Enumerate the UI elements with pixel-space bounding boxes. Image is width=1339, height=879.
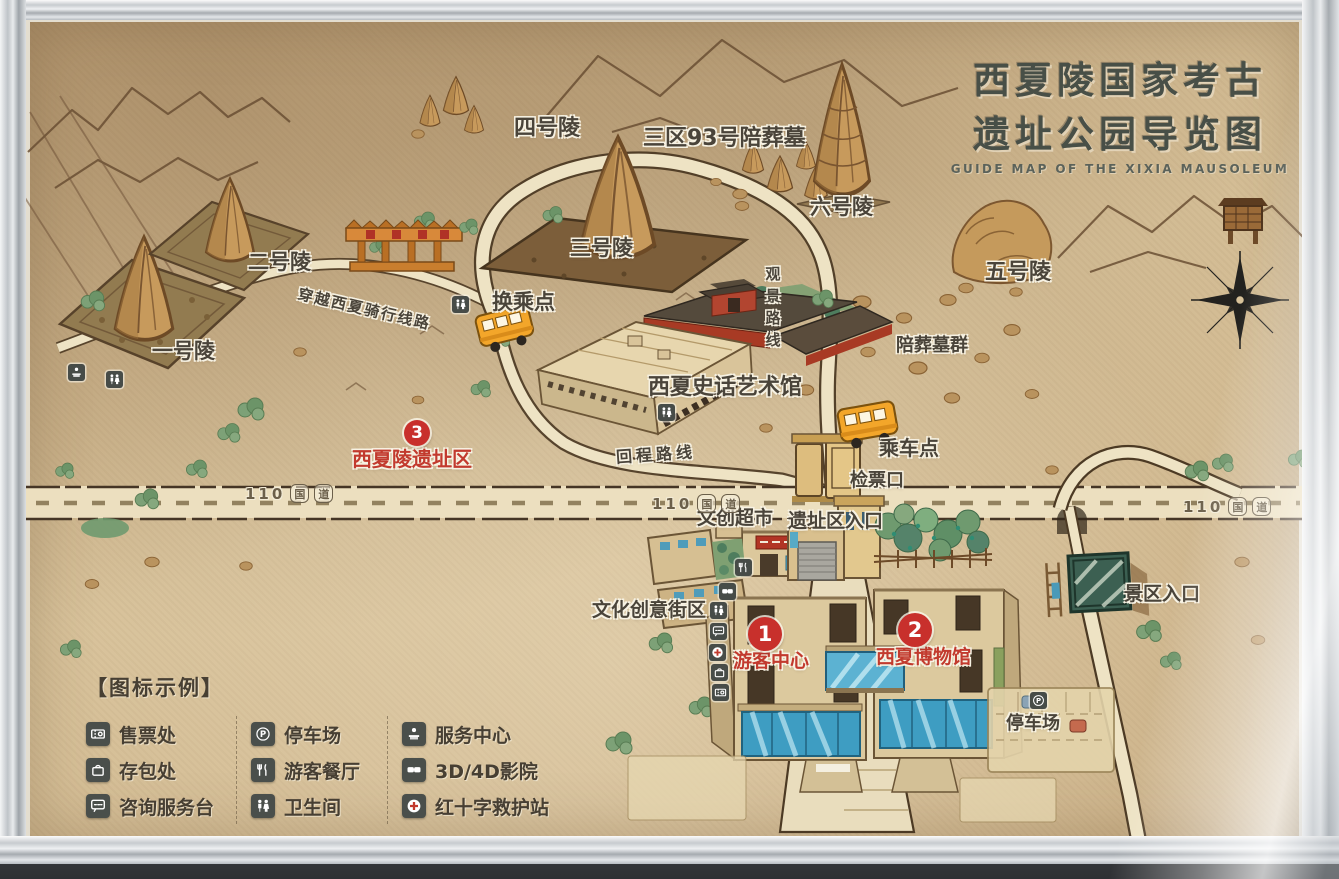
legend-grid: 售票处 存包处 咨询服务台 P 停车场 [86,716,607,824]
sign-frame-top [0,0,1339,20]
highway-110-label: 110 国 道 [245,484,333,503]
label-scenic-route: 观景路线 [764,266,781,354]
label-site-entrance: 遗址区入口 [788,511,883,532]
marker-3-site-area: 3 [404,420,430,446]
label-tomb3: 三号陵 [570,237,633,260]
legend-header: 【图标示例】 [86,672,607,702]
legend-label: 游客餐厅 [284,757,360,784]
service-center-icon [68,364,85,381]
legend-label: 红十字救护站 [435,793,549,820]
legend-label: 停车场 [284,721,341,748]
label-parking-lot: 停车场 [1006,714,1060,734]
legend-column-1: 售票处 存包处 咨询服务台 [86,716,236,824]
label-layer: 西夏陵国家考古 遗址公园导览图 GUIDE MAP OF THE XIXIA M… [0,0,1339,879]
legend-item: 服务中心 [402,716,607,752]
label-transfer-point: 换乘点 [492,291,555,314]
legend-column-3: 服务中心 3D/4D影院 红十字救护站 [387,716,607,824]
legend-item: 卫生间 [251,788,387,824]
restaurant-icon [251,758,275,782]
map-title-line2: 遗址公园导览图 [930,104,1310,158]
highway-110-label: 110 国 道 [1183,497,1271,516]
information-desk-icon [710,623,727,640]
map-title-english: GUIDE MAP OF THE XIXIA MAUSOLEUM [930,162,1310,176]
label-scenic-area-entrance: 景区入口 [1124,584,1200,605]
legend-item: 存包处 [86,752,236,788]
bag-storage-icon [86,758,110,782]
toilet-icon [251,794,275,818]
label-return-route: 回程路线 [615,443,696,466]
toilet-icon [710,602,727,619]
label-tomb1: 一号陵 [152,340,215,363]
highway-dao: 道 [314,484,333,503]
service-center-icon [402,722,426,746]
parking-icon: P [251,722,275,746]
ticket-office-icon [712,684,729,701]
label-ticket-check: 检票口 [850,471,904,491]
parking-icon: P [1030,692,1047,709]
label-visitor-center: 游客中心 [733,651,809,672]
legend-item: 游客餐厅 [251,752,387,788]
legend: 【图标示例】 售票处 存包处 咨询服务台 [86,672,607,824]
restaurant-icon [735,559,752,576]
marker-1-visitor-center: 1 [748,617,782,651]
cinema-icon [402,758,426,782]
legend-label: 售票处 [119,721,176,748]
photographed-guide-map-sign: 西夏陵国家考古 遗址公园导览图 GUIDE MAP OF THE XIXIA M… [0,0,1339,879]
label-satellite-tombs: 陪葬墓群 [896,336,968,356]
label-tomb2: 二号陵 [248,251,311,274]
highway-110-label: 110 国 道 [652,494,740,513]
first-aid-icon [709,644,726,661]
sign-frame-bottom [0,836,1339,864]
marker-2-xixia-museum: 2 [898,613,932,647]
toilet-icon [658,404,675,421]
sign-frame-right [1302,0,1339,862]
svg-text:P: P [260,730,266,740]
svg-text:P: P [1036,697,1041,705]
label-xixia-museum: 西夏博物馆 [876,647,971,668]
first-aid-icon [402,794,426,818]
label-tomb5: 五号陵 [985,261,1051,285]
label-tomb6: 六号陵 [810,196,873,219]
legend-label: 服务中心 [435,721,511,748]
legend-label: 3D/4D影院 [435,757,538,784]
map-title-line1: 西夏陵国家考古 [930,50,1310,104]
label-boarding-point: 乘车点 [879,437,939,459]
label-site-area: 西夏陵遗址区 [352,448,472,470]
map-title: 西夏陵国家考古 遗址公园导览图 GUIDE MAP OF THE XIXIA M… [930,50,1310,176]
legend-item: 售票处 [86,716,236,752]
legend-label: 存包处 [119,757,176,784]
legend-item: 咨询服务台 [86,788,236,824]
bag-storage-icon [711,664,728,681]
highway-guo: 国 [290,484,309,503]
label-tomb4: 四号陵 [514,117,580,141]
legend-item: P 停车场 [251,716,387,752]
highway-number: 110 [245,485,285,503]
legend-column-2: P 停车场 游客餐厅 卫生间 [236,716,387,824]
label-creative-street: 文化创意街区 [592,600,706,621]
label-cycling-route: 穿越西夏骑行线路 [296,286,432,333]
legend-item: 3D/4D影院 [402,752,607,788]
toilet-icon [106,371,123,388]
sign-frame-left [0,0,26,862]
label-tomb93: 三区93号陪葬墓 [643,127,806,151]
cinema-icon [719,583,736,600]
legend-item: 红十字救护站 [402,788,607,824]
legend-label: 咨询服务台 [119,793,214,820]
legend-label: 卫生间 [284,793,341,820]
ticket-office-icon [86,722,110,746]
toilet-icon [452,296,469,313]
label-art-museum: 西夏史话艺术馆 [648,376,802,400]
information-desk-icon [86,794,110,818]
